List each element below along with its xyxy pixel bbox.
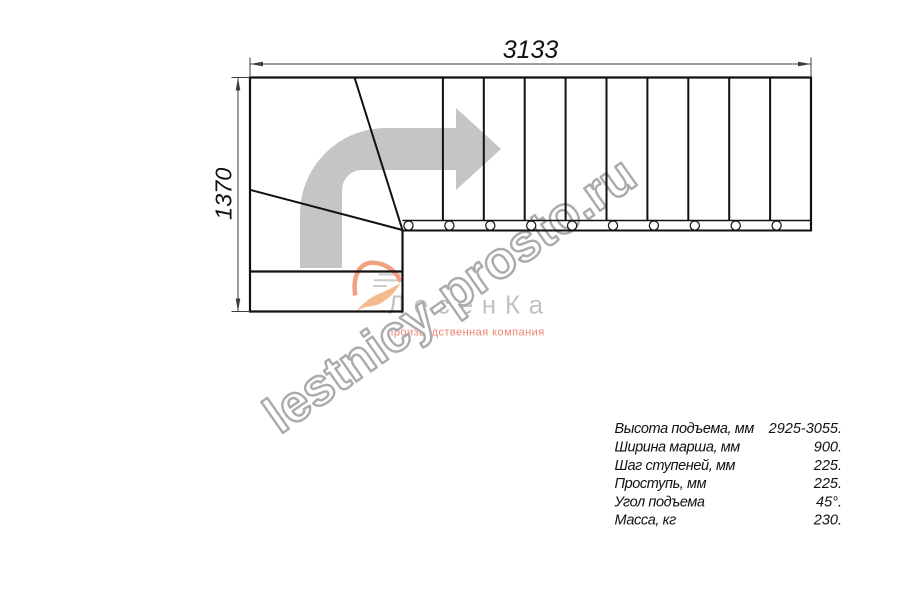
svg-text:225.: 225. (813, 458, 842, 474)
svg-text:Высота подъема, мм: Высота подъема, мм (615, 421, 755, 437)
svg-text:1370: 1370 (211, 168, 237, 220)
svg-text:Ширина марша, мм: Ширина марша, мм (615, 440, 741, 456)
svg-text:225.: 225. (813, 476, 842, 492)
svg-text:Проступь, мм: Проступь, мм (615, 476, 707, 492)
svg-text:Угол подъема: Угол подъема (614, 494, 705, 510)
svg-text:230.: 230. (813, 513, 842, 529)
svg-text:Шаг ступеней, мм: Шаг ступеней, мм (615, 458, 736, 474)
svg-text:Масса, кг: Масса, кг (615, 513, 677, 529)
svg-text:2925-3055.: 2925-3055. (768, 421, 842, 437)
svg-text:900.: 900. (814, 440, 842, 456)
svg-text:3133: 3133 (503, 36, 559, 64)
svg-text:45°.: 45°. (816, 494, 842, 510)
